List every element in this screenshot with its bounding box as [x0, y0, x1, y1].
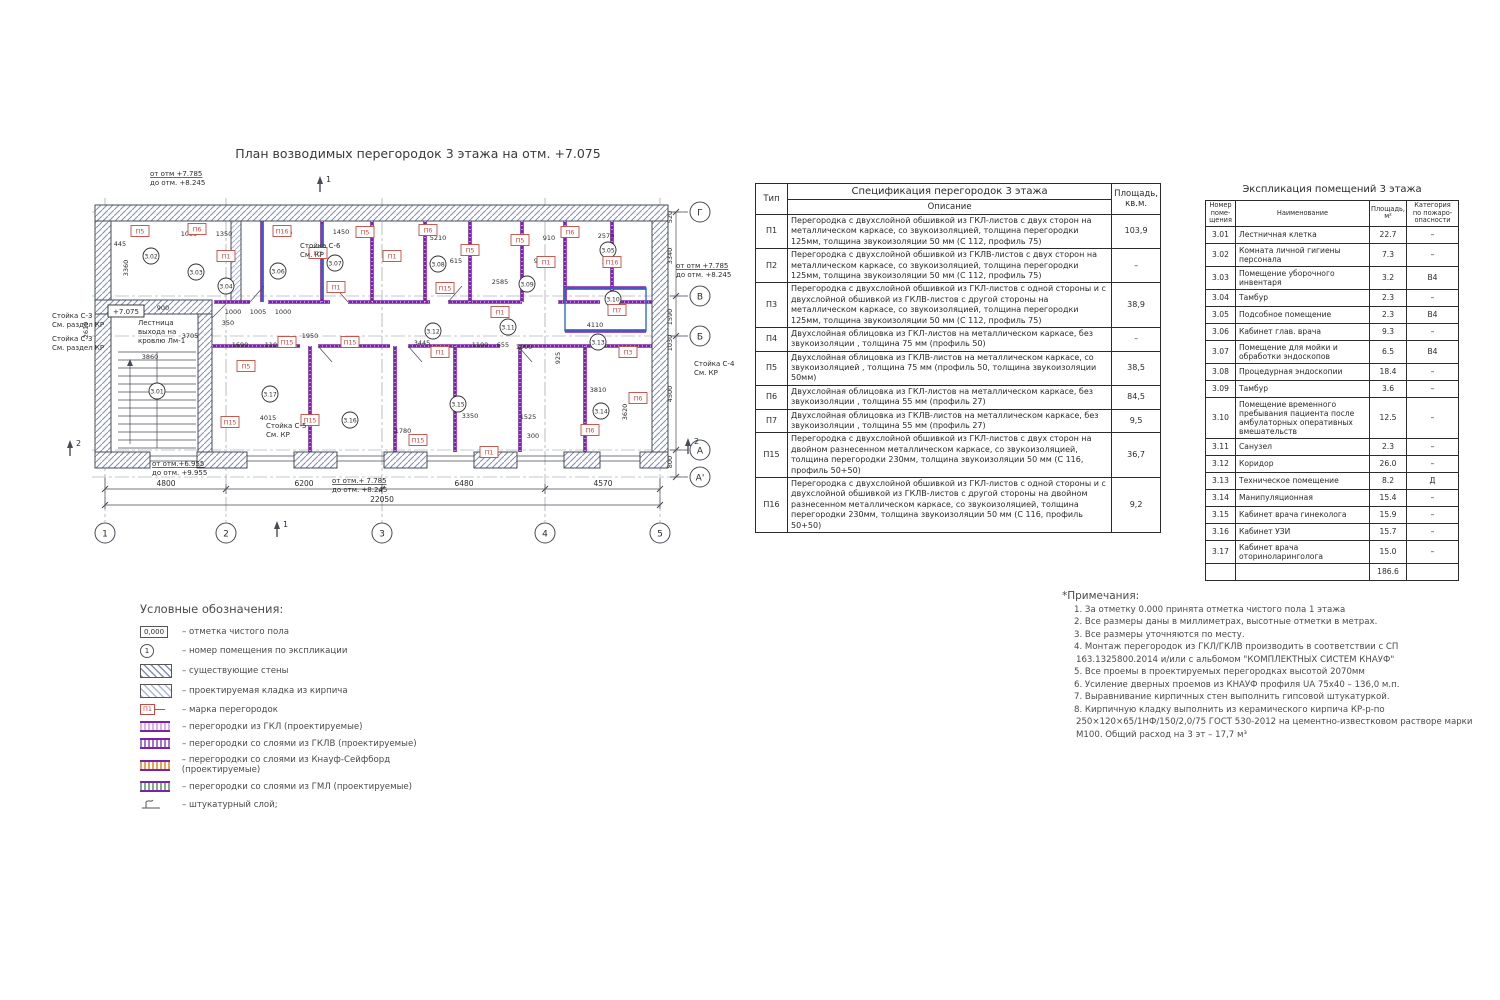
spec-row: П6Двухслойная облицовка из ГКЛ-листов на… — [756, 385, 1161, 409]
axis-label: В — [697, 293, 703, 303]
dimension-label: 3445 — [414, 339, 431, 347]
room-area: 6.5 — [1370, 340, 1407, 363]
plan-annotation: до отм. +8.245 — [676, 271, 731, 279]
partition-mark-label: П1 — [542, 260, 551, 267]
room-num: 3.15 — [1206, 506, 1236, 523]
spec-row: П5Двухслойная облицовка из ГКЛВ-листов н… — [756, 351, 1161, 385]
room-area: 8.2 — [1370, 472, 1407, 489]
legend-item-label: – штукатурный слой; — [182, 800, 278, 810]
axis-label: 1 — [102, 530, 108, 540]
legend-item-label: – отметка чистого пола — [182, 627, 289, 637]
legend: Условные обозначения: 0,000– отметка чис… — [140, 602, 470, 818]
room-num: 3.02 — [1206, 243, 1236, 266]
partition-mark-label: П1 — [496, 310, 505, 317]
plan-annotation: Стойка С-4 — [694, 360, 735, 368]
partition-mark-label: П5 — [242, 364, 251, 371]
section-mark-arrowhead — [67, 440, 73, 448]
room-number: 3.09 — [520, 281, 534, 288]
note-line: 5. Все проемы в проектируемых перегородк… — [1062, 666, 1474, 678]
room-cat: – — [1407, 540, 1459, 563]
rooms-row: 3.03Помещение уборочного инвентаря3.2В4 — [1206, 266, 1459, 289]
spec-table-title: Спецификация перегородок 3 этажа — [788, 184, 1112, 200]
room-number: 3.08 — [431, 261, 445, 268]
spec-area: – — [1112, 249, 1161, 283]
plan-annotation: См. раздел КР — [52, 321, 104, 329]
rooms-col-name: Наименование — [1236, 201, 1370, 227]
partition-mark-label: П3 — [624, 350, 633, 357]
plaster-icon — [140, 798, 182, 812]
room-cat: – — [1407, 397, 1459, 438]
axis-bubbles: 12345ГВБАА' — [95, 202, 710, 543]
room-area: 15.7 — [1370, 523, 1407, 540]
room-name: Процедурная эндоскопии — [1236, 363, 1370, 380]
partition-mark-label: П15 — [412, 438, 425, 445]
partition-mark-label: П15 — [344, 340, 357, 347]
spec-col-type: Тип — [756, 184, 788, 215]
rooms-table-title: Экспликация помещений 3 этажа — [1205, 184, 1459, 195]
room-area: 3.2 — [1370, 266, 1407, 289]
room-name: Комната личной гигиены персонала — [1236, 243, 1370, 266]
spec-area: 9,2 — [1112, 477, 1161, 532]
spec-desc: Двухслойная облицовка из ГКЛВ-листов на … — [788, 409, 1112, 433]
section-mark-label: 1 — [283, 520, 288, 529]
dimension-label: 1525 — [520, 413, 537, 421]
rooms-total-row: 186.6 — [1206, 563, 1459, 580]
rooms-col-area: Площадь, м² — [1370, 201, 1407, 227]
plan-annotation: выхода на — [138, 328, 176, 336]
room-area: 3.6 — [1370, 380, 1407, 397]
room-cat: – — [1407, 363, 1459, 380]
room-cat: – — [1407, 380, 1459, 397]
axis-label: 4 — [542, 530, 548, 540]
room-number: 3.03 — [189, 269, 203, 276]
partition-mark-label: П6 — [566, 230, 575, 237]
spec-area: 38,5 — [1112, 351, 1161, 385]
legend-item-label: – перегородки со слоями из ГМЛ (проектир… — [182, 782, 412, 792]
rooms-table: Экспликация помещений 3 этажа Номер поме… — [1205, 184, 1459, 581]
spec-type: П3 — [756, 283, 788, 328]
partition-mark-label: П1 — [485, 450, 494, 457]
spec-row: П3Перегородка с двухслойной обшивкой из … — [756, 283, 1161, 328]
partition-mark-label: П6 — [634, 396, 643, 403]
room-name: Манипуляционная — [1236, 489, 1370, 506]
room-name: Помещение уборочного инвентаря — [1236, 266, 1370, 289]
plan-annotation: См. раздел КР — [52, 344, 104, 352]
dimension-label: 4110 — [587, 321, 604, 329]
dimension-label: 910 — [543, 234, 555, 242]
spec-desc: Двухслойная облицовка из ГКЛ-листов на м… — [788, 327, 1112, 351]
partition-mark-label: П7 — [613, 308, 622, 315]
dimension-label: 4500 — [666, 386, 674, 403]
spec-type: П15 — [756, 433, 788, 478]
section-mark-label: 1 — [326, 175, 331, 184]
dimension-label: 925 — [554, 352, 562, 364]
dimension-label: 1350 — [216, 230, 233, 238]
partition-mark-label: П5 — [516, 238, 525, 245]
room-name: Техническое помещение — [1236, 472, 1370, 489]
room-area: 26.0 — [1370, 455, 1407, 472]
partitions-blue-highlight — [262, 221, 646, 331]
dimension-label: 1030 — [666, 335, 674, 352]
spec-row: П4Двухслойная облицовка из ГКЛ-листов на… — [756, 327, 1161, 351]
room-num: 3.13 — [1206, 472, 1236, 489]
room-num: 3.14 — [1206, 489, 1236, 506]
rooms-row: 3.14Манипуляционная15.4– — [1206, 489, 1459, 506]
legend-item: – существующие стены — [140, 664, 470, 678]
room-number: 3.02 — [144, 253, 158, 260]
room-cat: В4 — [1407, 340, 1459, 363]
note-line: 4. Монтаж перегородок из ГКЛ/ГКЛВ произв… — [1062, 641, 1474, 666]
dimension-label: 1690 — [232, 341, 249, 349]
room-num: 3.09 — [1206, 380, 1236, 397]
spec-desc: Перегородка с двухслойной обшивкой из ГК… — [788, 477, 1112, 532]
room-area: 15.0 — [1370, 540, 1407, 563]
rooms-col-num: Номер поме- щения — [1206, 201, 1236, 227]
room-num: 3.05 — [1206, 306, 1236, 323]
rooms-total-cell — [1206, 563, 1236, 580]
room-area: 9.3 — [1370, 323, 1407, 340]
rooms-row: 3.07Помещение для мойки и обработки эндо… — [1206, 340, 1459, 363]
axis-label: 5 — [657, 530, 663, 540]
room-num: 3.11 — [1206, 438, 1236, 455]
legend-item: – перегородки со слоями из ГМЛ (проектир… — [140, 781, 470, 792]
room-cat: Д — [1407, 472, 1459, 489]
plan-annotation: См. КР — [694, 369, 718, 377]
dimension-label: 1000 — [225, 308, 242, 316]
rooms-row: 3.16Кабинет УЗИ15.7– — [1206, 523, 1459, 540]
legend-item: – перегородки со слоями из Кнауф-Сейфбор… — [140, 755, 470, 775]
elevation-value: +7.075 — [113, 308, 139, 316]
band-gml-icon — [140, 781, 182, 792]
room-number: 3.01 — [150, 388, 164, 395]
room-area: 2.3 — [1370, 306, 1407, 323]
room-number: 3.13 — [591, 339, 605, 346]
dimension-label: 350 — [222, 319, 234, 327]
dimension-label: 2570 — [598, 232, 615, 240]
spec-desc: Перегородка с двухслойной обшивкой из ГК… — [788, 249, 1112, 283]
notes: *Примечания: 1. За отметку 0.000 принята… — [1062, 590, 1474, 741]
dimension-label: 1450 — [333, 228, 350, 236]
room-number: 3.14 — [594, 408, 608, 415]
room-number: 3.06 — [271, 268, 285, 275]
dimension-label: 3360 — [122, 260, 130, 277]
spec-row: П16Перегородка с двухслойной обшивкой из… — [756, 477, 1161, 532]
note-line: 3. Все размеры уточняются по месту. — [1062, 629, 1474, 641]
plan-annotation: Стойка С-3 — [52, 312, 92, 320]
spec-table: Тип Спецификация перегородок 3 этажа Пло… — [755, 183, 1161, 533]
room-number: 3.12 — [426, 328, 440, 335]
legend-item: – проектируемая кладка из кирпича — [140, 684, 470, 698]
room-cat: – — [1407, 489, 1459, 506]
partition-mark-label: П1 — [388, 254, 397, 261]
spec-desc: Перегородка с двухслойной обшивкой из ГК… — [788, 433, 1112, 478]
dimension-label: 900 — [157, 304, 169, 312]
room-number: 3.04 — [219, 283, 233, 290]
room-number: 3.07 — [328, 260, 342, 267]
room-number: 3.16 — [343, 417, 357, 424]
spec-type: П4 — [756, 327, 788, 351]
rooms-total-cell — [1236, 563, 1370, 580]
axis-label: Г — [697, 209, 703, 219]
axis-label: Б — [697, 333, 703, 343]
room-area: 15.9 — [1370, 506, 1407, 523]
spec-col-area: Площадь, кв.м. — [1112, 184, 1161, 215]
room-area: 12.5 — [1370, 397, 1407, 438]
rooms-row: 3.10Помещение временного пребывания паци… — [1206, 397, 1459, 438]
dimension-label: 3620 — [621, 404, 629, 421]
staircase — [118, 352, 196, 448]
plan-annotation: Лестница — [138, 319, 174, 327]
room-area: 2.3 — [1370, 289, 1407, 306]
note-line: 8. Кирпичную кладку выполнить из керамич… — [1062, 704, 1474, 741]
plan-annotation: кровлю Лм-1 — [138, 337, 185, 345]
spec-desc: Перегородка с двухслойной обшивкой из ГК… — [788, 283, 1112, 328]
spec-type: П6 — [756, 385, 788, 409]
spec-type: П16 — [756, 477, 788, 532]
room-name: Лестничная клетка — [1236, 226, 1370, 243]
note-line: 7. Выравнивание кирпичных стен выполнить… — [1062, 691, 1474, 703]
partition-mark-label: П16 — [276, 229, 289, 236]
band-gkl-icon — [140, 721, 182, 732]
dimension-label: 1950 — [302, 332, 319, 340]
room-area: 18.4 — [1370, 363, 1407, 380]
room-name: Помещение для мойки и обработки эндоскоп… — [1236, 340, 1370, 363]
dimension-label: 445 — [114, 240, 126, 248]
room-area: 15.4 — [1370, 489, 1407, 506]
partition-mark-label: П6 — [424, 228, 433, 235]
rooms-row: 3.17Кабинет врача оториноларинголога15.0… — [1206, 540, 1459, 563]
room-number: 3.05 — [601, 247, 615, 254]
spec-type: П1 — [756, 215, 788, 249]
room-cat: – — [1407, 323, 1459, 340]
room-name: Кабинет глав. врача — [1236, 323, 1370, 340]
spec-row: П2Перегородка с двухслойной обшивкой из … — [756, 249, 1161, 283]
spec-desc: Двухслойная облицовка из ГКЛ-листов на м… — [788, 385, 1112, 409]
room-num: 3.04 — [1206, 289, 1236, 306]
room-num: 3.17 — [1206, 540, 1236, 563]
section-mark-label: 2 — [694, 437, 699, 446]
axis-label: А — [697, 447, 704, 457]
plan-annotation: до отм. +9.955 — [152, 469, 207, 477]
plan-annotation: от отм.+6.955 — [152, 460, 204, 468]
legend-item-label: – перегородки со слоями из ГКЛВ (проекти… — [182, 739, 417, 749]
room-num: 3.03 — [1206, 266, 1236, 289]
floor-plan: 4800620064804570220505203340159010304500… — [30, 135, 745, 565]
partition-mark-label: П1 — [436, 350, 445, 357]
room-name: Санузел — [1236, 438, 1370, 455]
rooms-row: 3.05Подсобное помещение2.3В4 — [1206, 306, 1459, 323]
room-num: 3.08 — [1206, 363, 1236, 380]
room-cat: – — [1407, 243, 1459, 266]
partition-mark-label: П5 — [136, 229, 145, 236]
plan-annotation: от отм +7.785 — [150, 170, 202, 178]
spec-row: П7Двухслойная облицовка из ГКЛВ-листов н… — [756, 409, 1161, 433]
dimension-label: 6480 — [454, 479, 473, 488]
spec-area: 84,5 — [1112, 385, 1161, 409]
dimension-total: 22050 — [370, 495, 394, 504]
dimension-label: 520 — [666, 211, 674, 223]
partition-mark-label: П1 — [332, 285, 341, 292]
hatch-brick-icon — [140, 684, 182, 698]
spec-area: 103,9 — [1112, 215, 1161, 249]
room-cat: – — [1407, 455, 1459, 472]
room-number: 3.10 — [606, 296, 620, 303]
plan-annotation: Стойка С-6 — [300, 242, 341, 250]
room-area: 22.7 — [1370, 226, 1407, 243]
dimension-label: 3340 — [666, 248, 674, 265]
room-num: 3.07 — [1206, 340, 1236, 363]
room-name: Тамбур — [1236, 380, 1370, 397]
legend-item-label: – номер помещения по экспликации — [182, 646, 347, 656]
spec-type: П7 — [756, 409, 788, 433]
axis-label: 3 — [379, 530, 385, 540]
section-mark-arrowhead — [685, 438, 691, 446]
legend-item: 0,000– отметка чистого пола — [140, 626, 470, 638]
room-number: 3.11 — [501, 324, 515, 331]
rooms-row: 3.12Коридор26.0– — [1206, 455, 1459, 472]
room-number: 3.17 — [263, 391, 277, 398]
dimension-label: 1000 — [275, 308, 292, 316]
plan-annotation: до отм. +8.245 — [150, 179, 205, 187]
dimension-label: 4800 — [156, 479, 175, 488]
partition-mark-label: П6 — [193, 227, 202, 234]
rooms-row: 3.11Санузел2.3– — [1206, 438, 1459, 455]
spec-desc: Перегородка с двухслойной обшивкой из ГК… — [788, 215, 1112, 249]
legend-item: – штукатурный слой; — [140, 798, 470, 812]
dimension-label: 4015 — [260, 414, 277, 422]
legend-item-label: – перегородки из ГКЛ (проектируемые) — [182, 722, 363, 732]
hatch-existing-icon — [140, 664, 182, 678]
spec-col-desc: Описание — [788, 200, 1112, 215]
room-cat: В4 — [1407, 266, 1459, 289]
partition-mark-label: П1 — [222, 254, 231, 261]
room-cat: – — [1407, 506, 1459, 523]
room-cat: – — [1407, 289, 1459, 306]
rooms-row: 3.09Тамбур3.6– — [1206, 380, 1459, 397]
dimension-label: 800 — [666, 456, 674, 468]
room-cat: – — [1407, 438, 1459, 455]
room-cat: В4 — [1407, 306, 1459, 323]
plan-annotation: до отм. +8.245 — [332, 486, 387, 494]
dimension-label: 1000 — [516, 343, 533, 351]
rooms-row: 3.15Кабинет врача гинеколога15.9– — [1206, 506, 1459, 523]
spec-row: П1Перегородка с двухслойной обшивкой из … — [756, 215, 1161, 249]
room-name: Кабинет врача оториноларинголога — [1236, 540, 1370, 563]
room-num: 3.16 — [1206, 523, 1236, 540]
partition-mark-label: П15 — [224, 420, 237, 427]
notes-title: *Примечания: — [1062, 590, 1474, 602]
room-name: Кабинет УЗИ — [1236, 523, 1370, 540]
note-line: 6. Усиление дверных проемов из КНАУФ про… — [1062, 679, 1474, 691]
dimension-label: 300 — [527, 432, 539, 440]
legend-item-label: – перегородки со слоями из Кнауф-Сейфбор… — [182, 755, 470, 775]
room-name: Помещение временного пребывания пациента… — [1236, 397, 1370, 438]
plan-annotation: См. КР — [300, 251, 324, 259]
dimension-label: 655 — [497, 341, 509, 349]
spec-desc: Двухслойная облицовка из ГКЛВ-листов на … — [788, 351, 1112, 385]
rooms-col-cat: Категория по пожаро- опасности — [1407, 201, 1459, 227]
dimension-label: 3860 — [142, 353, 159, 361]
partition-mark-label: П15 — [439, 286, 452, 293]
section-mark-arrowhead — [274, 521, 280, 529]
dimension-label: 615 — [450, 257, 462, 265]
rooms-row: 3.02Комната личной гигиены персонала7.3– — [1206, 243, 1459, 266]
legend-title: Условные обозначения: — [140, 602, 470, 616]
plan-annotation: Стойка С-3 — [52, 335, 92, 343]
note-line: 1. За отметку 0.000 принята отметка чист… — [1062, 604, 1474, 616]
room-name: Тамбур — [1236, 289, 1370, 306]
legend-item: – перегородки со слоями из ГКЛВ (проекти… — [140, 738, 470, 749]
dimension-label: 6200 — [294, 479, 313, 488]
dimension-label: 4570 — [593, 479, 612, 488]
rooms-total-cell — [1407, 563, 1459, 580]
partition-mark-label: П6 — [586, 428, 595, 435]
legend-item-label: – марка перегородок — [182, 705, 278, 715]
room-circle-icon: 1 — [140, 644, 182, 658]
plan-annotation: от отм.+ 7.785 — [332, 477, 387, 485]
rooms-row: 3.13Техническое помещение8.2Д — [1206, 472, 1459, 489]
plan-annotation: Стойка С-5 — [266, 422, 306, 430]
room-name: Кабинет врача гинеколога — [1236, 506, 1370, 523]
dimension-label: 1100 — [472, 341, 489, 349]
note-line: 2. Все размеры даны в миллиметрах, высот… — [1062, 616, 1474, 628]
spec-area: 9,5 — [1112, 409, 1161, 433]
dimension-label: 3810 — [590, 386, 607, 394]
dimension-label: 1005 — [250, 308, 267, 316]
spec-area: 36,7 — [1112, 433, 1161, 478]
room-num: 3.10 — [1206, 397, 1236, 438]
band-ks-icon — [140, 760, 182, 771]
room-num: 3.06 — [1206, 323, 1236, 340]
section-mark-arrowhead — [317, 176, 323, 184]
room-name: Коридор — [1236, 455, 1370, 472]
mark-box-icon: П1 — [140, 704, 182, 715]
room-number: 3.15 — [451, 401, 465, 408]
axis-label: 2 — [223, 530, 229, 540]
room-cat: – — [1407, 226, 1459, 243]
room-name: Подсобное помещение — [1236, 306, 1370, 323]
dimension-label: 2585 — [492, 278, 509, 286]
dimension-label: 1780 — [395, 427, 412, 435]
room-num: 3.01 — [1206, 226, 1236, 243]
rooms-row: 3.01Лестничная клетка22.7– — [1206, 226, 1459, 243]
dimension-label: 3350 — [462, 412, 479, 420]
axis-label: А' — [696, 474, 705, 484]
plan-annotation: от отм +7.785 — [676, 262, 728, 270]
room-cat: – — [1407, 523, 1459, 540]
legend-item-label: – существующие стены — [182, 666, 288, 676]
room-area: 7.3 — [1370, 243, 1407, 266]
rooms-row: 3.08Процедурная эндоскопии18.4– — [1206, 363, 1459, 380]
spec-area: 38,9 — [1112, 283, 1161, 328]
partition-mark-label: П5 — [466, 248, 475, 255]
plan-title: План возводимых перегородок 3 этажа на о… — [228, 146, 608, 161]
rooms-row: 3.06Кабинет глав. врача9.3– — [1206, 323, 1459, 340]
legend-item: 1– номер помещения по экспликации — [140, 644, 470, 658]
partition-mark-label: П5 — [361, 230, 370, 237]
spec-area: – — [1112, 327, 1161, 351]
dimension-label: 1590 — [666, 309, 674, 326]
section-mark-label: 2 — [76, 439, 81, 448]
rooms-row: 3.04Тамбур2.3– — [1206, 289, 1459, 306]
spec-type: П5 — [756, 351, 788, 385]
room-num: 3.12 — [1206, 455, 1236, 472]
partition-mark-label: П16 — [606, 260, 619, 267]
elev-box-icon: 0,000 — [140, 626, 182, 638]
legend-item: – перегородки из ГКЛ (проектируемые) — [140, 721, 470, 732]
plan-annotation: См. КР — [266, 431, 290, 439]
legend-item: П1– марка перегородок — [140, 704, 470, 715]
